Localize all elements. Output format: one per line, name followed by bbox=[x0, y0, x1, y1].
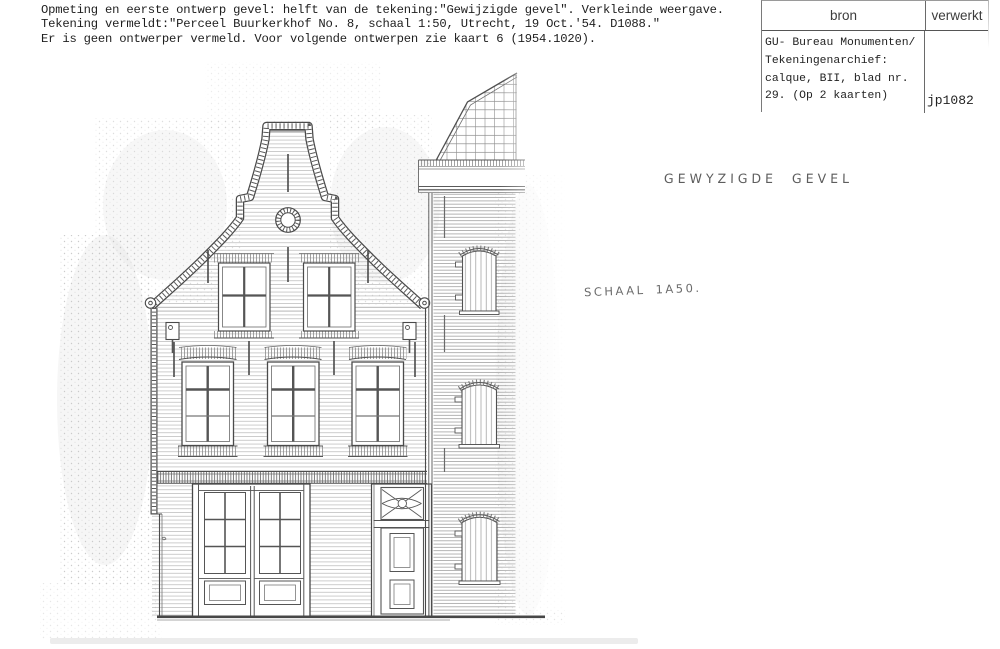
scan-fade-right bbox=[500, 60, 570, 610]
scanner-shadow-strip bbox=[50, 638, 638, 644]
gable-scroll-right bbox=[419, 298, 429, 308]
entrance-door bbox=[372, 484, 432, 617]
shuttered-window-1 bbox=[456, 249, 500, 315]
scanned-archive-card: Opmeting en eerste ontwerp gevel: helft … bbox=[0, 0, 1000, 649]
shuttered-window-3 bbox=[455, 515, 500, 585]
gable-scroll-left bbox=[145, 298, 155, 308]
storefront-cornice-band bbox=[152, 472, 427, 484]
gable-oculus bbox=[276, 208, 301, 233]
first-floor-window-3 bbox=[352, 362, 404, 446]
attic-window-right bbox=[304, 263, 356, 331]
first-floor-window-1 bbox=[182, 362, 234, 446]
shuttered-window-2 bbox=[455, 383, 500, 449]
attic-window-left bbox=[219, 263, 271, 331]
ground-line bbox=[157, 616, 545, 621]
facade-elevation-drawing bbox=[0, 0, 1000, 649]
first-floor-window-2 bbox=[268, 362, 320, 446]
storefront-doors bbox=[193, 484, 311, 617]
